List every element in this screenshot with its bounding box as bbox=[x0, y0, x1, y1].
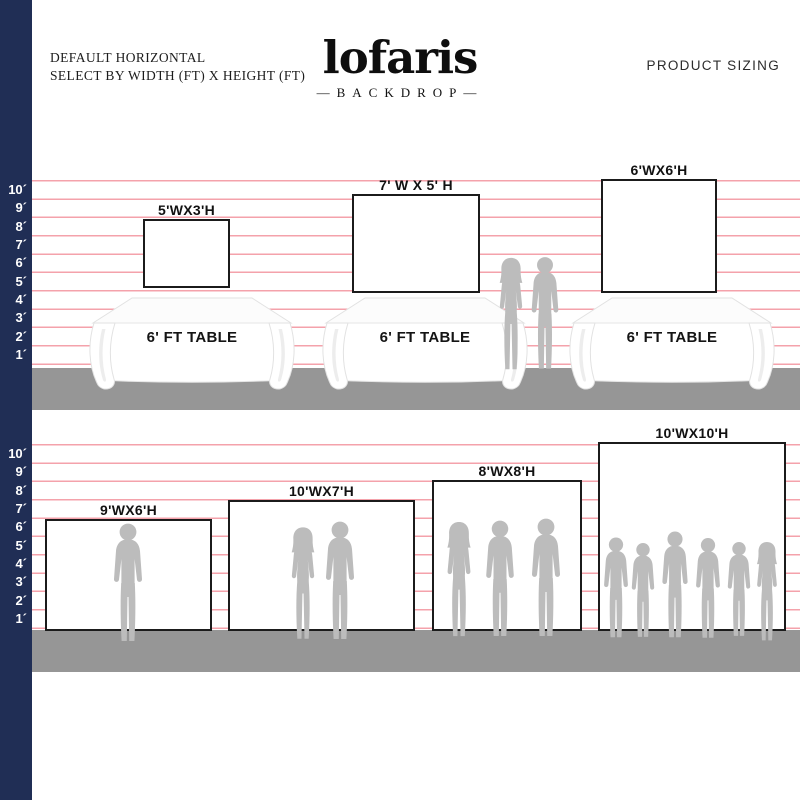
group-silhouette-10x10 bbox=[597, 528, 791, 642]
backdrop-7x5: 7' W X 5' H bbox=[352, 194, 480, 293]
ruler-label-8ft-row1: 8´ bbox=[0, 219, 27, 235]
ruler-label-9ft-row2: 9´ bbox=[0, 464, 27, 480]
backdrop-5x3-label: 5'WX3'H bbox=[115, 202, 258, 218]
ruler-label-9ft-row1: 9´ bbox=[0, 200, 27, 216]
brand-name: lofaris bbox=[240, 33, 560, 83]
couple-silhouette-row1 bbox=[494, 253, 564, 374]
ruler-label-4ft-row1: 4´ bbox=[0, 292, 27, 308]
backdrop-10x10-label: 10'WX10'H bbox=[570, 425, 800, 441]
ruler-label-10ft-row2: 10´ bbox=[0, 446, 27, 462]
backdrop-7x5-label: 7' W X 5' H bbox=[324, 177, 508, 193]
trio-silhouette-8x8 bbox=[441, 518, 567, 638]
ruler-label-6ft-row2: 6´ bbox=[0, 519, 27, 535]
table-3-label: 6' FT TABLE bbox=[567, 329, 777, 346]
backdrop-6x6: 6'WX6'H bbox=[601, 179, 717, 293]
man-silhouette-9x6 bbox=[108, 523, 148, 643]
ruler-label-10ft-row1: 10´ bbox=[0, 182, 27, 198]
ruler-label-3ft-row2: 3´ bbox=[0, 574, 27, 590]
ruler-label-1ft-row1: 1´ bbox=[0, 347, 27, 363]
ruler-label-2ft-row1: 2´ bbox=[0, 329, 27, 345]
ruler-label-7ft-row1: 7´ bbox=[0, 237, 27, 253]
backdrop-6x6-label: 6'WX6'H bbox=[573, 162, 745, 178]
ruler-label-7ft-row2: 7´ bbox=[0, 501, 27, 517]
ruler-label-2ft-row2: 2´ bbox=[0, 593, 27, 609]
ruler-label-4ft-row2: 4´ bbox=[0, 556, 27, 572]
couple-silhouette-10x7 bbox=[284, 520, 360, 642]
page-title: PRODUCT SIZING bbox=[647, 58, 780, 73]
ruler-label-5ft-row2: 5´ bbox=[0, 538, 27, 554]
backdrop-5x3: 5'WX3'H bbox=[143, 219, 230, 288]
ruler-label-3ft-row1: 3´ bbox=[0, 310, 27, 326]
ruler-label-8ft-row2: 8´ bbox=[0, 483, 27, 499]
ruler-label-6ft-row1: 6´ bbox=[0, 255, 27, 271]
backdrop-10x7-label: 10'WX7'H bbox=[200, 483, 443, 499]
brand-logo: lofaris —BACKDROP— bbox=[240, 33, 560, 101]
brand-tagline: —BACKDROP— bbox=[240, 85, 560, 101]
ruler-label-1ft-row2: 1´ bbox=[0, 611, 27, 627]
backdrop-9x6-label: 9'WX6'H bbox=[17, 502, 240, 518]
table-1-label: 6' FT TABLE bbox=[87, 329, 297, 346]
product-sizing-infographic: DEFAULT HORIZONTAL SELECT BY WIDTH (FT) … bbox=[0, 0, 800, 800]
backdrop-8x8-label: 8'WX8'H bbox=[404, 463, 610, 479]
left-ruler-bar bbox=[0, 0, 32, 800]
ruler-label-5ft-row1: 5´ bbox=[0, 274, 27, 290]
